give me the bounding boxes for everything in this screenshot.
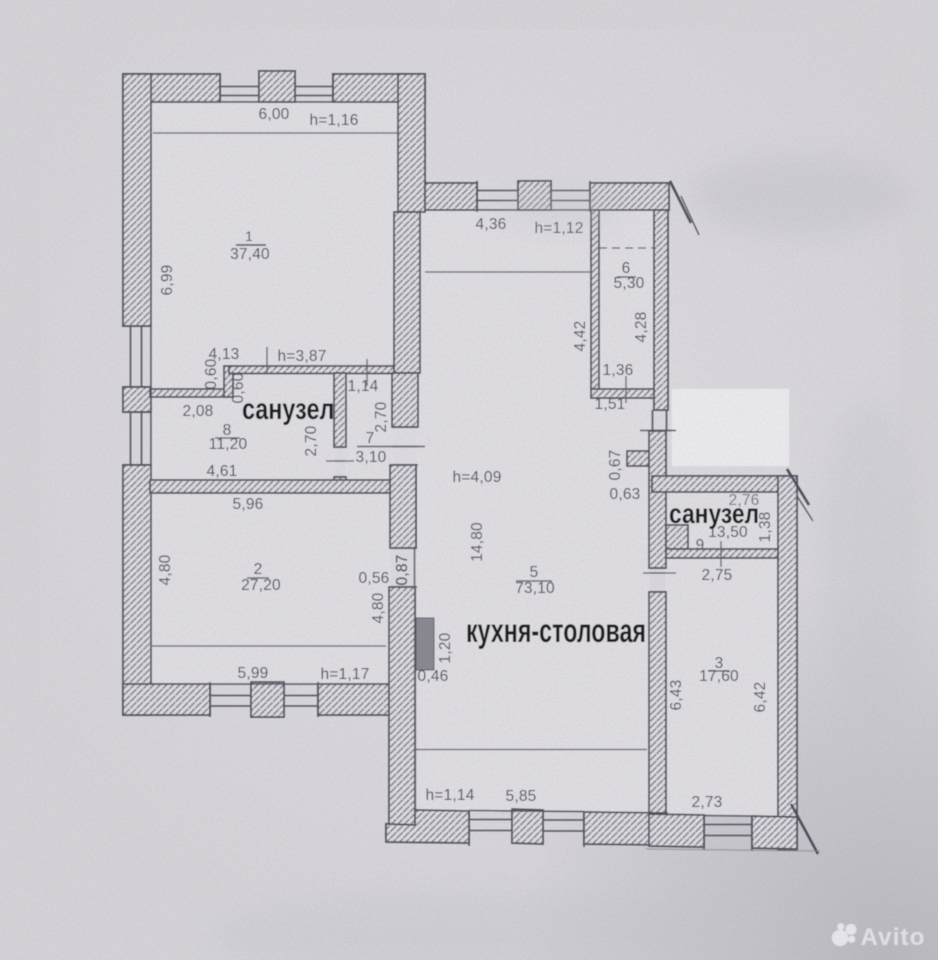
svg-text:Avito: Avito: [861, 924, 926, 951]
